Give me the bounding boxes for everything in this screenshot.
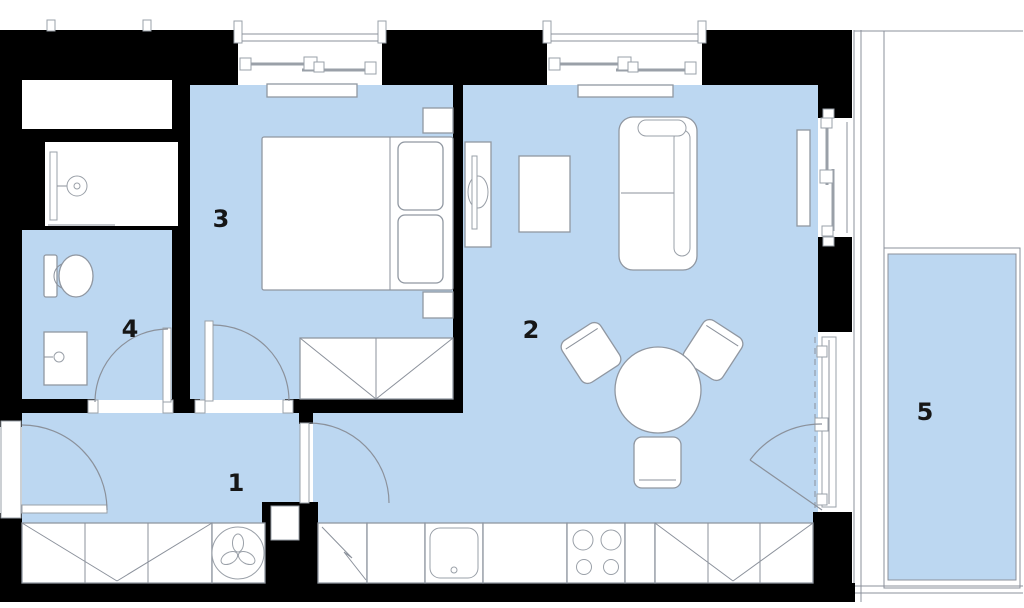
counter-section bbox=[625, 523, 655, 583]
hallway-wardrobe bbox=[22, 523, 212, 583]
kitchen-counter bbox=[318, 523, 813, 583]
wall-north bbox=[190, 30, 238, 85]
window-handle bbox=[821, 118, 832, 128]
window-post bbox=[234, 21, 242, 43]
window-post bbox=[543, 21, 551, 43]
kitchen-cabinet bbox=[655, 523, 813, 583]
east-window bbox=[820, 109, 847, 246]
window-handle bbox=[820, 170, 833, 183]
wall-bedroom-living bbox=[453, 85, 463, 413]
burner bbox=[604, 560, 619, 575]
shower-head-center bbox=[74, 183, 80, 189]
ventilation-shaft bbox=[271, 506, 299, 540]
window-post bbox=[823, 109, 834, 118]
pillow bbox=[398, 215, 443, 283]
burner bbox=[577, 560, 592, 575]
pillow bbox=[398, 142, 443, 210]
wall-south bbox=[0, 583, 855, 602]
sofa bbox=[619, 117, 697, 270]
room-label-balcony: 5 bbox=[917, 398, 934, 426]
window-handle bbox=[365, 62, 376, 74]
tv-stand bbox=[465, 142, 491, 247]
kitchen-floor bbox=[313, 413, 463, 523]
window-post bbox=[698, 21, 706, 43]
door-handle bbox=[817, 346, 827, 357]
washing-machine bbox=[212, 523, 265, 583]
toilet-tank bbox=[44, 255, 57, 297]
door-leaf bbox=[163, 328, 171, 402]
floor-plan: 1 2 3 4 5 bbox=[0, 0, 1024, 608]
sofa-backrest bbox=[674, 130, 690, 256]
wall-bathroom-bedroom bbox=[172, 85, 190, 400]
duct-shaft bbox=[22, 80, 172, 129]
door-threshold bbox=[1, 421, 21, 518]
counter-section bbox=[483, 523, 567, 583]
balcony-structure bbox=[854, 30, 1023, 602]
door-jamb bbox=[283, 400, 293, 413]
wall-bedroom-south bbox=[285, 399, 463, 413]
door-jamb bbox=[88, 400, 98, 413]
floor-plan-drawing: 1 2 3 4 5 bbox=[0, 0, 1024, 608]
door-handle bbox=[817, 494, 827, 505]
burner bbox=[601, 530, 621, 550]
wardrobe-body bbox=[22, 523, 212, 583]
wall-post bbox=[47, 20, 55, 31]
wall-post bbox=[143, 20, 151, 31]
room-label-bathroom: 4 bbox=[122, 315, 139, 343]
vanity-cabinet bbox=[44, 332, 87, 385]
door-leaf bbox=[300, 423, 309, 503]
sink-tap bbox=[54, 352, 64, 362]
shower-glass bbox=[50, 152, 57, 220]
radiator bbox=[797, 130, 810, 226]
toilet-bowl bbox=[59, 255, 93, 297]
door-jamb bbox=[195, 400, 205, 413]
room-label-living: 2 bbox=[523, 316, 540, 344]
nightstand bbox=[423, 292, 453, 318]
coffee-table bbox=[519, 156, 570, 232]
radiator bbox=[267, 84, 357, 97]
balcony-floor bbox=[888, 254, 1016, 580]
bedroom-wardrobe bbox=[300, 338, 453, 399]
living-room-window bbox=[543, 21, 706, 74]
room-label-bedroom: 3 bbox=[213, 205, 230, 233]
window-handle bbox=[549, 58, 560, 70]
window-handle bbox=[314, 62, 324, 72]
vanity-sink bbox=[44, 332, 87, 385]
dining-table bbox=[615, 347, 701, 433]
sofa-armrest bbox=[638, 120, 686, 136]
door-leaf bbox=[22, 505, 107, 513]
tv-screen bbox=[472, 156, 477, 229]
washer-blade bbox=[233, 534, 244, 552]
wall-stub bbox=[299, 412, 313, 424]
window-handle bbox=[822, 226, 833, 236]
wall-bathroom-south bbox=[0, 399, 95, 413]
window-handle bbox=[685, 62, 696, 74]
window-handle bbox=[240, 58, 251, 70]
chair bbox=[634, 437, 681, 488]
room-label-hallway: 1 bbox=[228, 469, 245, 497]
toilet bbox=[44, 255, 93, 297]
burner bbox=[573, 530, 593, 550]
window-post bbox=[823, 237, 834, 246]
window-handle bbox=[628, 62, 638, 72]
bed bbox=[262, 137, 453, 290]
sink-drain bbox=[451, 567, 457, 573]
bedroom-window bbox=[234, 21, 386, 74]
fridge bbox=[318, 523, 367, 583]
wall-west bbox=[0, 230, 22, 399]
radiator bbox=[578, 85, 673, 97]
wall-north bbox=[382, 30, 547, 85]
counter-section bbox=[367, 523, 425, 583]
nightstand bbox=[423, 108, 453, 133]
shower-tray bbox=[45, 142, 178, 226]
window-post bbox=[378, 21, 386, 43]
shower bbox=[45, 142, 178, 226]
wall-east bbox=[818, 30, 852, 118]
tv bbox=[468, 176, 488, 208]
wall-east bbox=[818, 237, 852, 332]
door-leaf bbox=[205, 321, 213, 401]
